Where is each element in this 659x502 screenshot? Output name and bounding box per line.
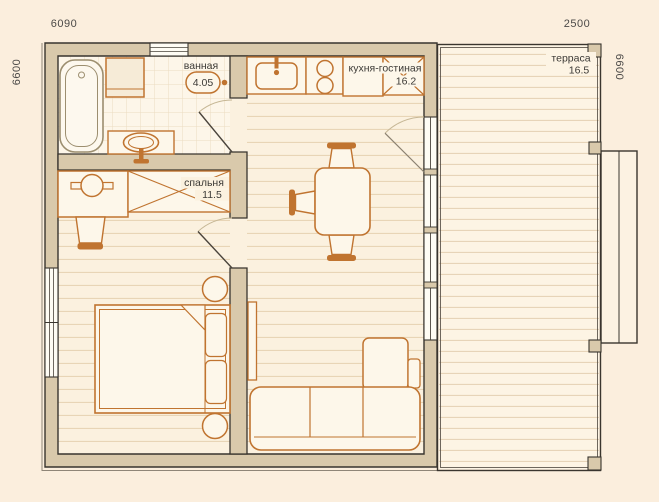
desk-chair (76, 217, 105, 250)
terrace-name: терраса (551, 53, 590, 65)
sofa-seat (250, 387, 420, 450)
terrace-label: терраса 16.5 (546, 52, 596, 77)
sofa-chaise (363, 338, 408, 390)
faucet-handle (134, 159, 150, 164)
dim-width-terrace: 2500 (564, 18, 590, 30)
wall-bathroom-pillar (230, 56, 247, 98)
dim-height-right: 6600 (613, 54, 625, 80)
dim-height-left: 6600 (11, 59, 23, 85)
bathtub (60, 60, 103, 152)
dining-chair-bottom (327, 235, 356, 261)
desk (58, 171, 128, 217)
cooktop (306, 57, 343, 94)
faucet-stem (139, 149, 144, 160)
bedroom-name: спальня (184, 177, 224, 189)
terrace-area: 16.5 (569, 65, 590, 77)
kitchen-faucet (275, 58, 279, 69)
dining-table (315, 168, 370, 235)
mullion-2 (424, 227, 437, 233)
window-top (150, 43, 188, 56)
dim-width-main: 6090 (51, 18, 77, 30)
double-bed (95, 305, 230, 413)
bedroom-area: 11.5 (202, 189, 222, 201)
desk-mirror (81, 175, 103, 197)
tv-panel (248, 302, 257, 380)
kitchen-area: 16.2 (396, 76, 417, 88)
washing-machine (106, 58, 144, 97)
mullion-1 (424, 169, 437, 175)
kitchen-name: кухня-гостиная (349, 63, 422, 75)
pillow-1 (206, 314, 227, 357)
mullion-3 (424, 282, 437, 288)
terrace-deck-lines (439, 45, 599, 469)
terrace-post-steps-top (589, 142, 601, 154)
bathroom-area: 4.05 (193, 77, 214, 89)
pillow-2 (206, 361, 227, 404)
floor-plan-svg: ванная 4.05 кухня-гостиная 16.2 спальня … (0, 0, 659, 502)
dining-chair-top (327, 143, 356, 169)
sofa-armrest (408, 359, 420, 388)
wall-bedroom-living (230, 268, 247, 454)
terrace-post-bottom-right (588, 457, 601, 470)
nightstand-bottom (203, 414, 228, 439)
bathroom-name: ванная (184, 60, 218, 72)
floor-plan-page: ванная 4.05 кухня-гостиная 16.2 спальня … (0, 0, 659, 502)
terrace-post-steps-bottom (589, 340, 601, 352)
kitchen-sink-counter (247, 57, 306, 94)
dining-chair-left (289, 190, 315, 216)
nightstand-top (203, 277, 228, 302)
